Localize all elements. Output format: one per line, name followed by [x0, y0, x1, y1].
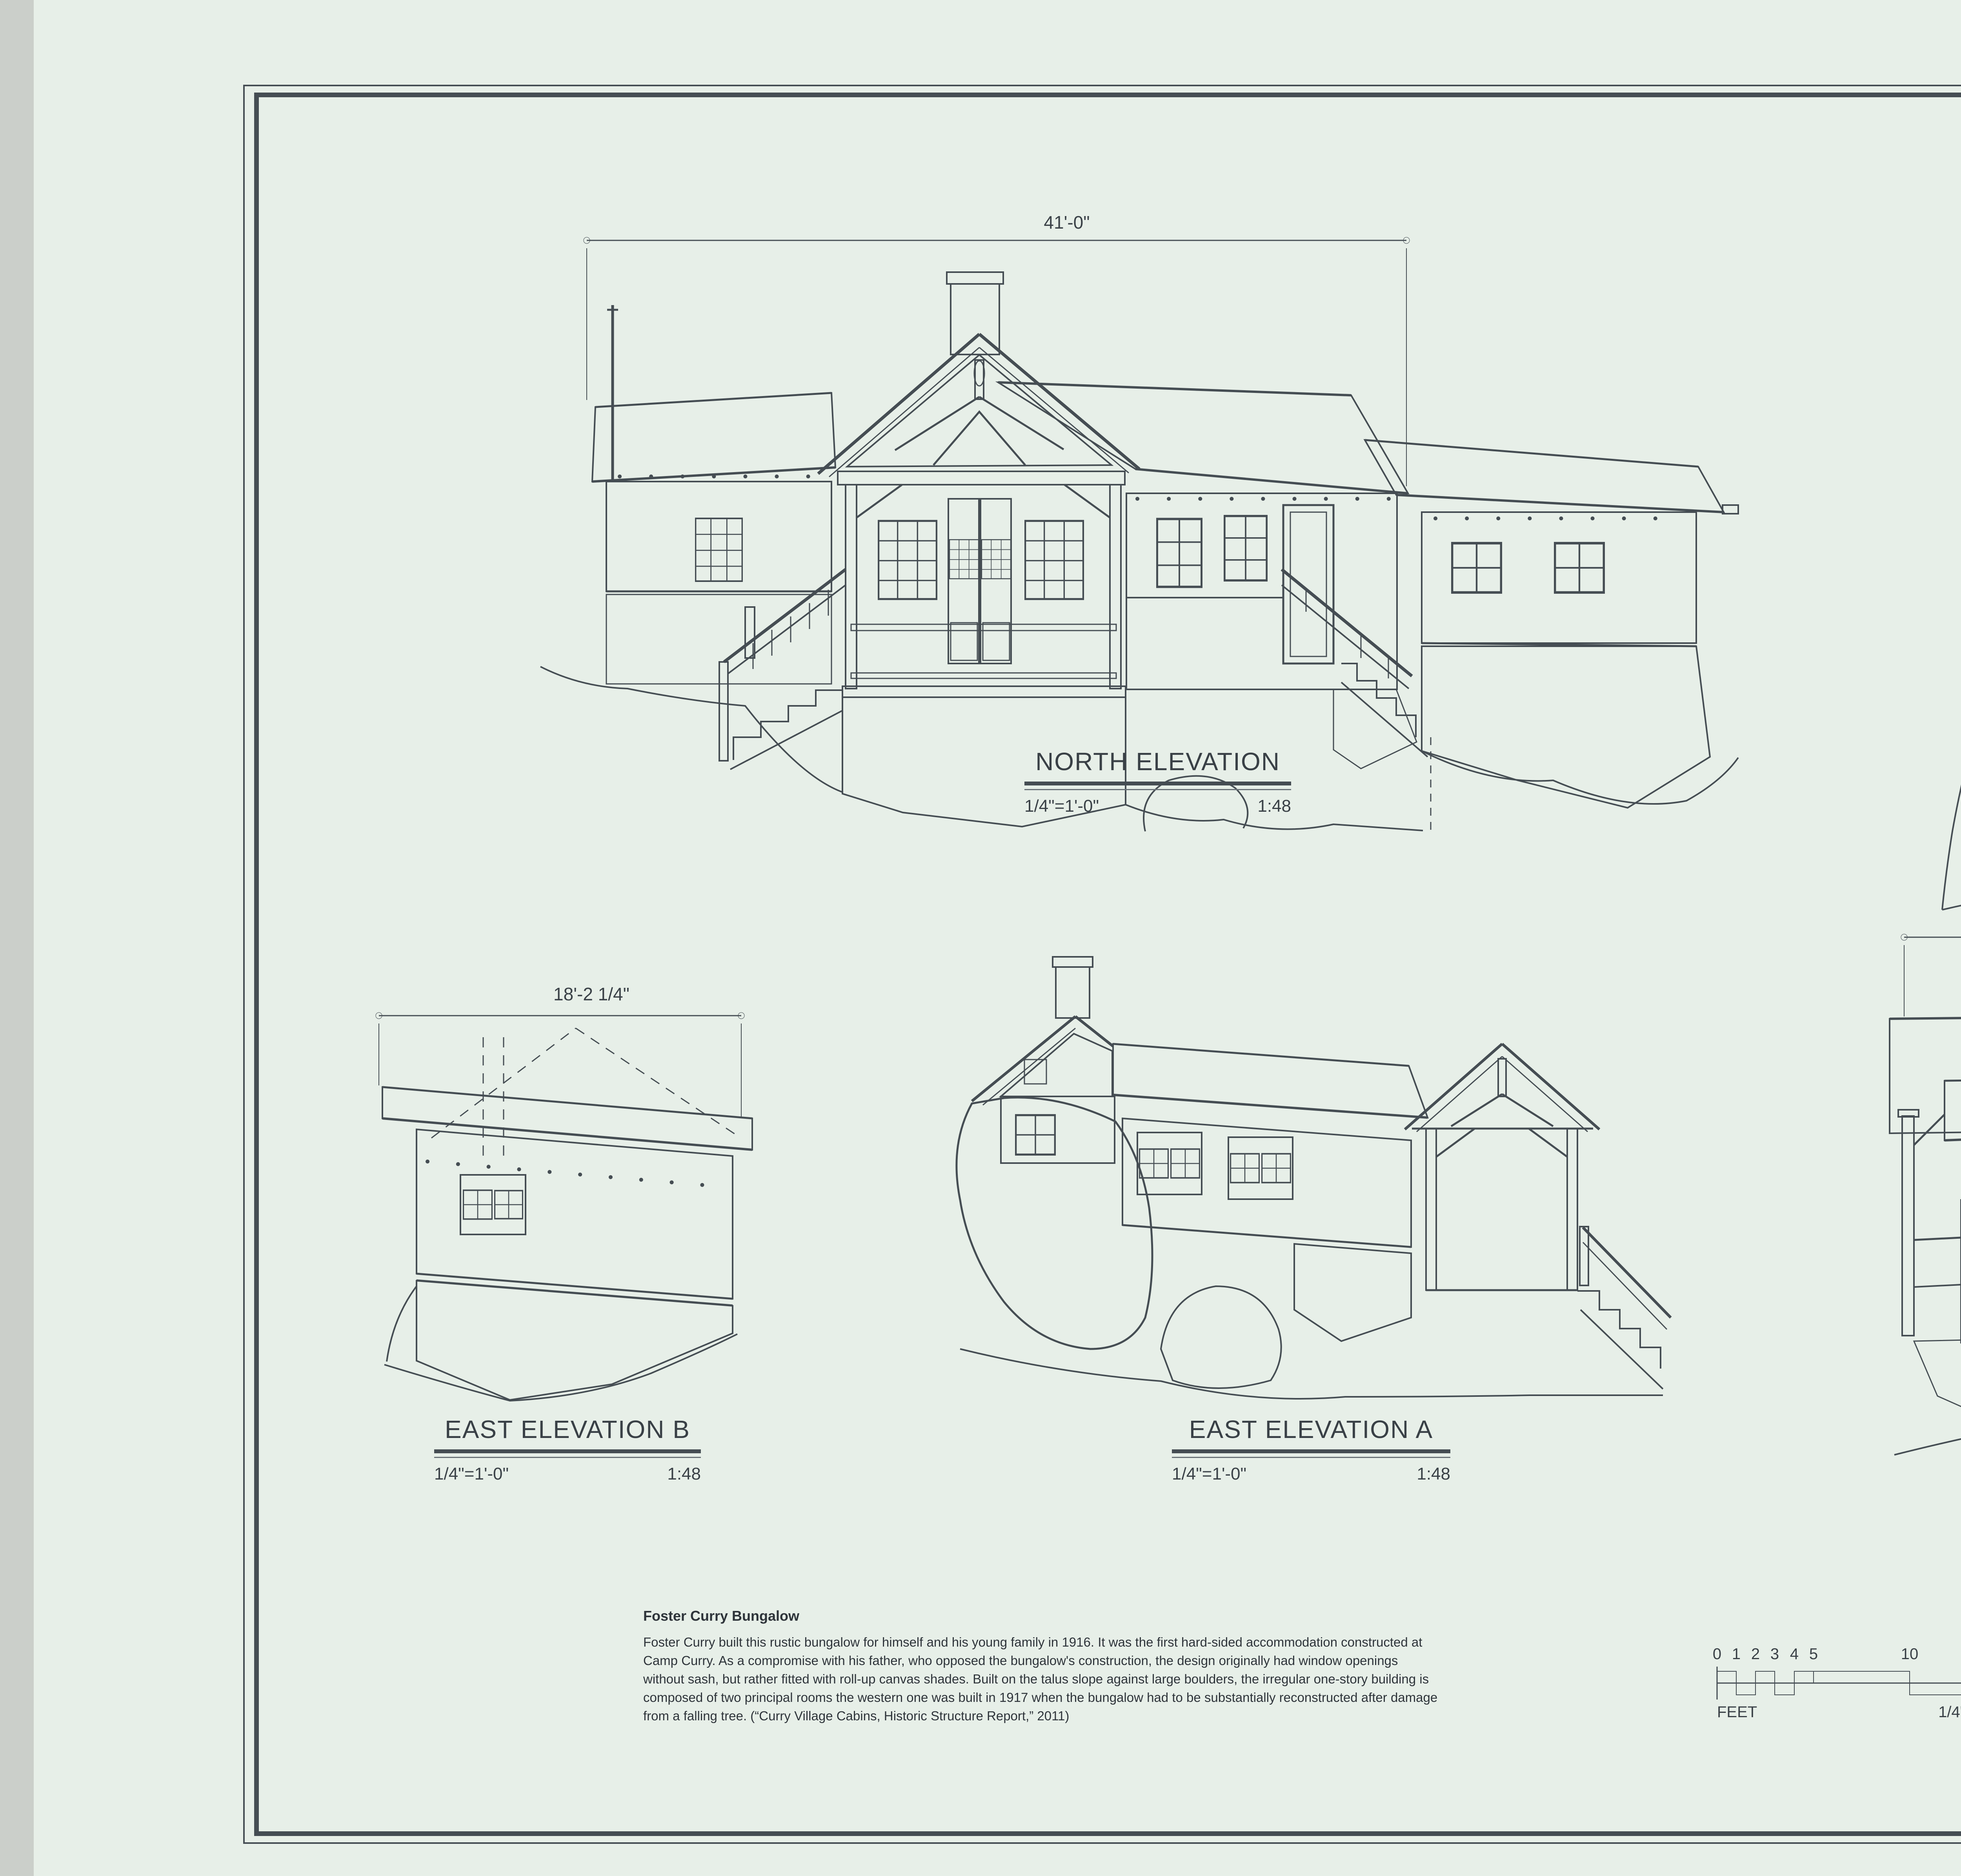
note-body: Foster Curry built this rustic bungalow …	[643, 1633, 1577, 1725]
east-elevation-a-label: EAST ELEVATION A 1/4"=1'-0"1:48	[1172, 1415, 1450, 1484]
east-elevation-b-drawing	[376, 1013, 752, 1401]
east-b-width-dimension: 18'-2 1/4"	[533, 983, 650, 1005]
scale-imperial: 1/4"=1'-0"	[1172, 1464, 1246, 1484]
feet-tick-2: 2	[1751, 1645, 1760, 1663]
east-elevation-a-drawing	[957, 957, 1671, 1399]
scale-imperial: 1/4"=1'-0"	[434, 1464, 509, 1484]
east-elevation-a-title: EAST ELEVATION A	[1172, 1415, 1450, 1444]
feet-tick-10: 10	[1901, 1645, 1919, 1663]
east-elevation-b-title: EAST ELEVATION B	[434, 1415, 701, 1444]
north-elevation-label: NORTH ELEVATION 1/4"=1'-0"1:48	[1024, 747, 1291, 816]
feet-tick-0: 0	[1713, 1645, 1721, 1663]
sheet-line-art	[0, 0, 1961, 1876]
east-elevation-b-label: EAST ELEVATION B 1/4"=1'-0"1:48	[434, 1415, 701, 1484]
scale-imperial: 1/4"=1'-0"	[1024, 796, 1099, 816]
feet-tick-4: 4	[1790, 1645, 1799, 1663]
north-width-dimension: 41'-0"	[1008, 212, 1126, 233]
scale-ratio: 1:48	[1257, 796, 1291, 816]
note-heading: Foster Curry Bungalow	[643, 1608, 799, 1624]
west-elevation-b-drawing	[1890, 934, 1961, 1455]
title-underline	[1024, 782, 1291, 785]
feet-tick-5: 5	[1809, 1645, 1818, 1663]
feet-scale-note: 1/4"=1'-0"	[1888, 1703, 1961, 1721]
feet-tick-3: 3	[1770, 1645, 1779, 1663]
west-elevation-a-drawing	[1942, 248, 1961, 910]
sheet-borders	[244, 85, 1961, 1843]
west-b-dimension-line	[1901, 934, 1961, 1016]
feet-unit-label: FEET	[1717, 1703, 1757, 1721]
scanned-sheet-background: { "colors": {"paper":"#e7efe8","ink":"#4…	[0, 0, 1961, 1876]
feet-tick-1: 1	[1732, 1645, 1741, 1663]
north-elevation-title: NORTH ELEVATION	[1024, 747, 1291, 776]
hals-drawing-sheet: 41'-0" 19'-5" 16'-6 3/4" 18'-2 1/4" 36'-…	[0, 0, 1961, 1876]
scale-ratio: 1:48	[667, 1464, 701, 1484]
north-elevation-drawing	[540, 237, 1738, 831]
feet-scale-bar	[1717, 1667, 1961, 1700]
scale-ratio: 1:48	[1417, 1464, 1450, 1484]
